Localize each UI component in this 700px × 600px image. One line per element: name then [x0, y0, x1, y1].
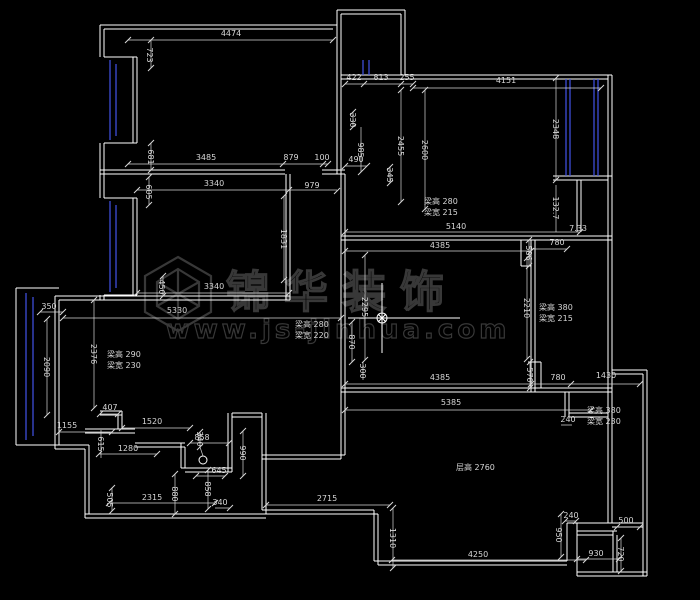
- dim-label: 梁宽 230: [587, 416, 621, 426]
- dim-label: 2715: [317, 494, 337, 503]
- dim-label: 407: [102, 403, 117, 412]
- dim-label: 4151: [496, 76, 516, 85]
- dim-label: 930: [588, 549, 603, 558]
- dim-label: 2455: [396, 136, 405, 156]
- dim-label: 梁宽 215: [424, 207, 458, 217]
- leader-circle: [199, 456, 207, 464]
- dim-label: 422: [346, 73, 361, 82]
- dim-label: 605: [144, 184, 153, 199]
- dim-label: 2210: [522, 298, 531, 318]
- dim-label: 2315: [142, 493, 162, 502]
- dim-label: 5330: [167, 306, 187, 315]
- dim-label: 570: [525, 367, 534, 382]
- dim-label: 880: [170, 486, 179, 501]
- dim-label: 645: [211, 466, 226, 475]
- dim-label: 813: [373, 73, 388, 82]
- dim-label: 梁高 280: [295, 319, 329, 329]
- dim-label: 979: [304, 181, 319, 190]
- dim-label: 4385: [430, 241, 450, 250]
- dim-label: 985: [356, 142, 365, 157]
- dim-label: 780: [549, 238, 564, 247]
- dim-label: 梁高 290: [107, 349, 141, 359]
- dim-label: 330: [348, 112, 357, 127]
- floorplan-drawing[interactable]: 锦华装饰 www.js-jinhua.com 44743485879100334…: [0, 0, 700, 600]
- dim-label: 2348: [551, 119, 560, 139]
- cad-viewport[interactable]: 锦华装饰 www.js-jinhua.com 44743485879100334…: [0, 0, 700, 600]
- dim-label: 梁高 380: [587, 405, 621, 415]
- dim-label: 7.33: [569, 224, 587, 233]
- dim-label: 1520: [142, 417, 162, 426]
- dim-label: 1310: [388, 528, 397, 548]
- window-lines: [26, 60, 598, 440]
- dim-label: 2600: [420, 140, 429, 160]
- dim-label: 500: [618, 516, 633, 525]
- dim-label: 梁宽 215: [539, 313, 573, 323]
- dim-label: 1155: [57, 421, 77, 430]
- dim-label: 350: [41, 302, 56, 311]
- dim-label: 780: [550, 373, 565, 382]
- dim-label: 2090: [42, 357, 51, 377]
- dim-label: 2376: [89, 344, 98, 364]
- dim-label: 4385: [430, 373, 450, 382]
- dim-label: 3340: [204, 282, 224, 291]
- dim-label: 梁高 280: [424, 196, 458, 206]
- dim-label: 720: [616, 546, 625, 561]
- watermark-brand: 锦华装饰: [226, 267, 458, 318]
- dim-label: 1430: [596, 371, 616, 380]
- dim-label: 255: [399, 73, 414, 82]
- dim-label: 3340: [204, 179, 224, 188]
- dim-label: 450: [157, 279, 166, 294]
- dim-label: 586: [524, 245, 533, 260]
- dim-label: 1280: [118, 444, 138, 453]
- dim-label: 300: [358, 363, 367, 378]
- dim-label: 340: [212, 498, 227, 507]
- dim-label: 3485: [196, 153, 216, 162]
- dim-label: 990: [238, 445, 247, 460]
- dim-label: 梁高 380: [539, 302, 573, 312]
- dim-label: 2295: [360, 297, 369, 317]
- dim-label: 870: [347, 334, 356, 349]
- dim-label: 345: [385, 167, 394, 182]
- dim-label: 240: [560, 415, 575, 424]
- dim-label: 681: [146, 149, 155, 164]
- dim-label: 4474: [221, 29, 241, 38]
- dim-label: 132.7: [551, 197, 560, 220]
- dim-label: 层高 2760: [456, 462, 495, 472]
- dim-label: 240: [563, 511, 578, 520]
- dim-label: 5385: [441, 398, 461, 407]
- watermark-url: www.js-jinhua.com: [166, 315, 511, 345]
- dim-label: 723: [145, 47, 154, 62]
- dim-label: 1831: [279, 229, 288, 249]
- dim-label: 858: [203, 481, 212, 496]
- dim-label: 4250: [468, 550, 488, 559]
- dim-label: 梁宽 220: [295, 330, 329, 340]
- dim-label: 5140: [446, 222, 466, 231]
- dim-label: 505: [105, 492, 114, 507]
- dim-label: 615: [96, 436, 105, 451]
- dim-label: 950: [554, 527, 563, 542]
- dim-label: 340: [195, 431, 204, 446]
- dim-label: 879: [283, 153, 298, 162]
- dim-label: 梁宽 230: [107, 360, 141, 370]
- dim-label: 100: [314, 153, 329, 162]
